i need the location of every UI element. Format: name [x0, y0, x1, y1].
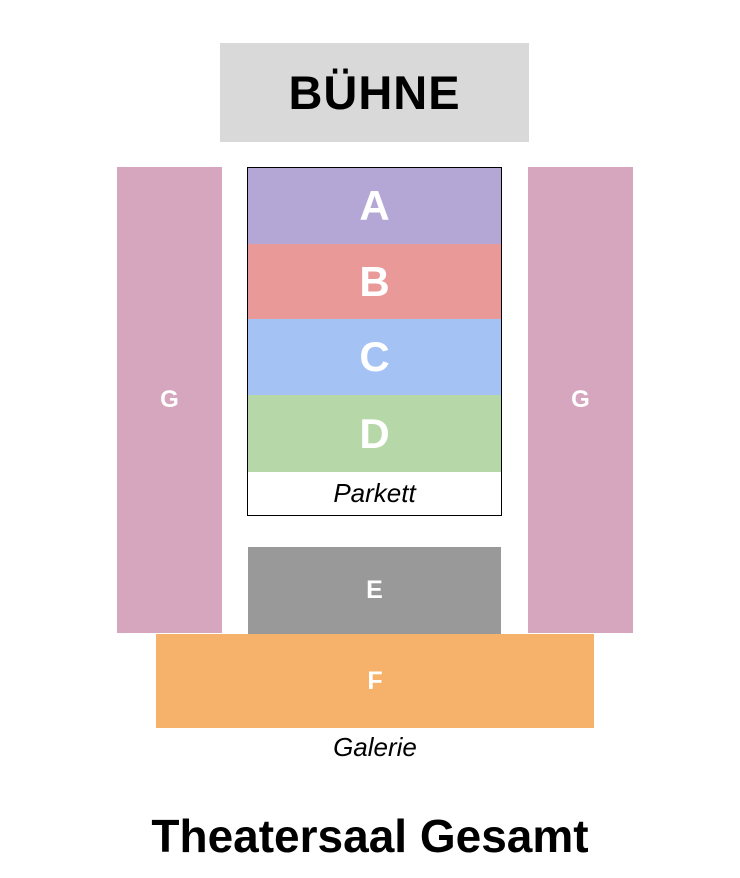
section-g-right[interactable]: G	[528, 167, 633, 633]
section-f[interactable]: F	[156, 634, 594, 728]
parkett-caption: Parkett	[333, 478, 415, 509]
section-b[interactable]: B	[248, 244, 501, 319]
section-a[interactable]: A	[248, 168, 501, 244]
parkett-block: A B C D Parkett	[247, 167, 502, 516]
section-b-label: B	[359, 258, 389, 306]
section-g-right-label: G	[571, 386, 590, 414]
galerie-caption: Galerie	[333, 732, 417, 763]
stage-box: BÜHNE	[220, 43, 529, 142]
section-c-label: C	[359, 333, 389, 381]
page-title: Theatersaal Gesamt	[0, 808, 740, 864]
section-c[interactable]: C	[248, 319, 501, 395]
galerie-caption-row: Galerie	[156, 730, 594, 764]
section-e-label: E	[366, 576, 383, 605]
section-d-label: D	[359, 410, 389, 458]
parkett-caption-row: Parkett	[248, 472, 501, 515]
section-g-left-label: G	[160, 386, 179, 414]
stage-label: BÜHNE	[288, 65, 460, 120]
section-f-label: F	[367, 667, 382, 696]
section-d[interactable]: D	[248, 395, 501, 472]
section-a-label: A	[359, 182, 389, 230]
section-g-left[interactable]: G	[117, 167, 222, 633]
seating-chart: BÜHNE G G A B C D Parkett E F Galerie	[0, 0, 740, 878]
section-e[interactable]: E	[248, 547, 501, 634]
